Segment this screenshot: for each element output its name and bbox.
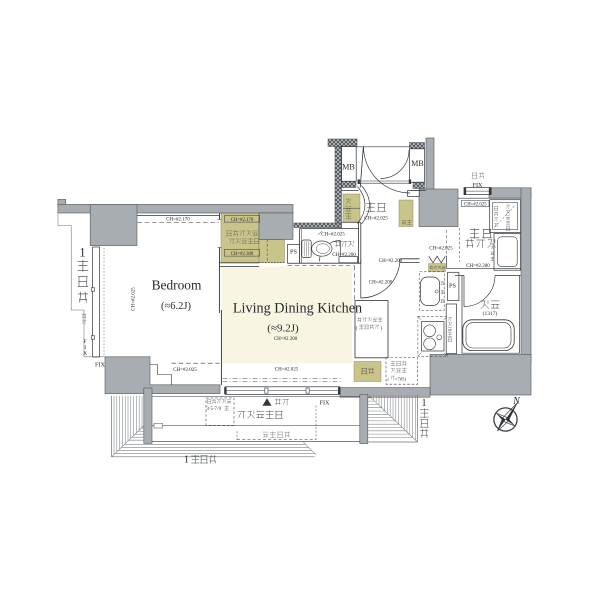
svg-text:PS: PS [290,249,298,256]
svg-text:=705): =705) [395,376,406,381]
svg-text:CH=#2.200: CH=#2.200 [369,281,393,286]
svg-text:FIX: FIX [95,361,106,368]
svg-text:CH=#2.025: CH=#2.025 [275,367,299,372]
svg-text:1: 1 [184,455,189,466]
svg-text:Living Dining Kitchen: Living Dining Kitchen [233,300,362,316]
svg-text:CH=#2.300: CH=#2.300 [274,337,298,342]
svg-text:CH=#2.280: CH=#2.280 [466,264,490,269]
svg-text:MB: MB [411,159,423,168]
svg-text:1: 1 [79,246,85,260]
svg-text:Bedroom: Bedroom [152,277,202,292]
svg-text:CH=#2.025: CH=#2.025 [321,233,345,238]
svg-text:FIX: FIX [320,399,331,406]
svg-text:FIX: FIX [473,182,484,189]
svg-text:CH=#2.170: CH=#2.170 [166,218,190,223]
svg-text:CH=#2.025: CH=#2.025 [429,246,453,251]
svg-text:CH=#2.200: CH=#2.200 [379,259,403,264]
svg-text:(≈6.2J): (≈6.2J) [161,301,191,312]
svg-text:N: N [512,396,521,407]
svg-text:CH=#2.025: CH=#2.025 [464,203,487,208]
svg-text:CH=#2.025: CH=#2.025 [132,287,137,311]
svg-text:(1317): (1317) [483,310,498,317]
svg-text:CH=#2.200: CH=#2.200 [332,253,356,258]
svg-text:CH=#2.170: CH=#2.170 [231,218,254,223]
svg-text:CH=#2.025: CH=#2.025 [173,368,197,373]
svg-text:(≈9.2J): (≈9.2J) [267,322,299,334]
svg-text:MB: MB [342,163,354,172]
svg-text:CH=#2.300: CH=#2.300 [231,252,254,257]
svg-text:CH=#2.025: CH=#2.025 [364,217,388,222]
svg-text:1: 1 [422,398,427,409]
svg-text:PS: PS [449,282,457,289]
svg-text:3·5·7·9: 3·5·7·9 [207,407,222,412]
